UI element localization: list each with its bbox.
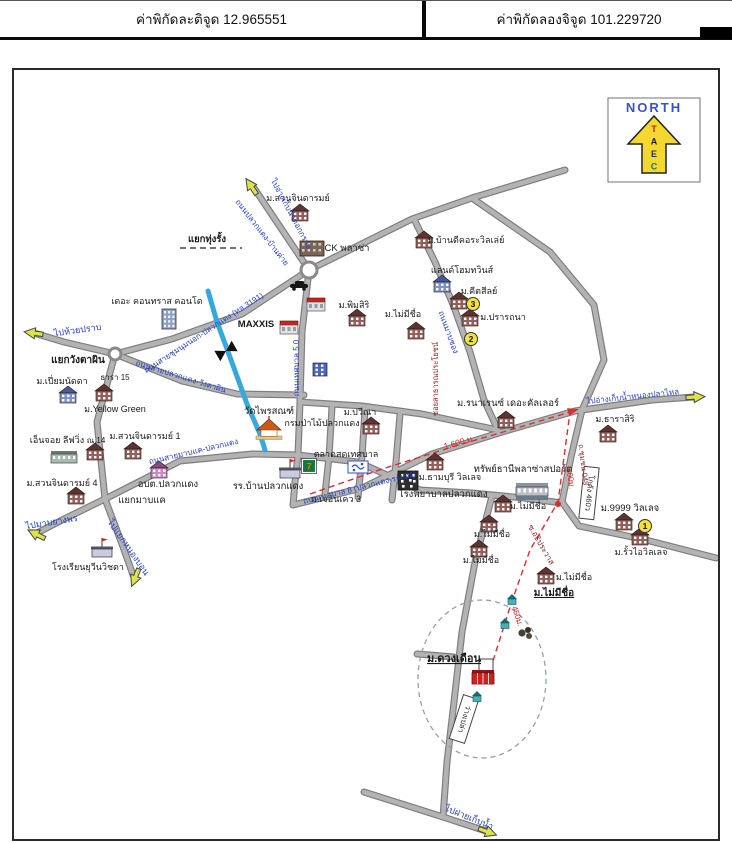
map-label: ม.ไม่มีชื่อ (474, 527, 510, 539)
icon-part (538, 574, 554, 584)
icon-building (461, 309, 479, 326)
icon-part (313, 363, 327, 376)
icon-part (356, 318, 358, 320)
icon-part (516, 487, 548, 496)
icon-part (137, 451, 139, 453)
icon-part (316, 365, 318, 367)
map-label: ซอยสาธารณประโยชน์ (431, 342, 440, 416)
map-label: ณ.14 (87, 436, 106, 445)
icon-part (307, 298, 325, 302)
map-label: ม.รนาเรนซ์ เดอะคัลเลอร์ (457, 397, 559, 409)
icon-part (151, 468, 167, 478)
icon-part (67, 395, 69, 397)
icon-part (600, 432, 616, 442)
map-label: ธารา 15 (100, 373, 130, 382)
icon-part (87, 450, 103, 460)
icon-govblue (313, 363, 327, 376)
icon-part (75, 500, 77, 502)
map-label: ม.Yellow Green (84, 404, 146, 414)
icon-part (415, 331, 417, 333)
road (34, 333, 115, 354)
number-badge-label: 1 (643, 521, 648, 531)
icon-part (320, 304, 323, 308)
icon-part (623, 522, 625, 524)
icon-part (316, 369, 318, 371)
icon-part (639, 537, 641, 539)
icon-part (441, 288, 443, 290)
icon-part (75, 496, 77, 498)
icon-part (602, 434, 604, 436)
icon-part (423, 244, 425, 246)
map-label: ม.ไม่มีชื่อ (556, 570, 592, 582)
icon-part (164, 316, 166, 318)
icon-part (351, 322, 353, 324)
icon-part (72, 395, 74, 397)
road-casing (472, 198, 604, 410)
icon-part (623, 526, 625, 528)
icon-part (288, 327, 291, 331)
map-label: ม.เปี่ยมนัดดา (36, 374, 87, 386)
icon-part (470, 540, 488, 547)
icon-part (451, 299, 467, 309)
map-label: โรงเรียนยุวีนวิชตา (52, 562, 124, 573)
icon-part (172, 325, 174, 327)
icon-building (407, 322, 425, 339)
icon-part (632, 535, 648, 545)
icon-part (483, 549, 485, 551)
map-label: ม.ดวงเดือน (427, 652, 482, 665)
icon-part (433, 275, 451, 282)
icon-part (356, 322, 358, 324)
icon-part (292, 287, 296, 291)
icon-part (441, 284, 443, 286)
icon-part (634, 541, 636, 543)
latitude-value: ค่าพิกัดละติจูด 12.965551 (136, 8, 287, 30)
icon-part (501, 623, 509, 629)
header-corner-mark (700, 27, 732, 39)
icon-part (516, 483, 548, 487)
icon-part (353, 469, 356, 472)
icon-part (365, 426, 367, 428)
icon-part (429, 466, 431, 468)
seven-eleven-icon: 7 (306, 461, 311, 472)
north-letter: C (651, 162, 658, 172)
number-badge: 3 (467, 298, 480, 311)
icon-part (540, 489, 543, 493)
icon-part (261, 430, 277, 437)
icon-part (321, 373, 323, 375)
icon-building (67, 487, 85, 504)
icon-part (163, 474, 165, 476)
icon-part (361, 318, 363, 320)
icon-part (463, 301, 465, 303)
map-frame: โกดัง 460วว่างเปล่า7ม.สวนจินดารมย์CK พลา… (12, 68, 720, 841)
map-label: กรมป่าไม้ปลวกแดง (284, 418, 359, 428)
icon-part (153, 474, 155, 476)
icon-part (102, 538, 108, 541)
north-letter: A (651, 137, 658, 147)
icon-part (602, 438, 604, 440)
icon-part (413, 480, 416, 483)
north-letter: T (651, 124, 657, 134)
icon-part (51, 451, 77, 454)
icon-part (408, 329, 424, 339)
icon-part (458, 305, 460, 307)
icon-part (124, 442, 142, 449)
icon-part (410, 331, 412, 333)
icon-part (508, 599, 516, 605)
icon-part (439, 462, 441, 464)
icon-part (534, 489, 537, 493)
number-badge: 1 (639, 520, 652, 533)
map-label: ทรัพย์ธานีพลาซ่าสปอร์ต (474, 463, 573, 475)
icon-part (473, 549, 475, 551)
icon-part (67, 487, 85, 494)
icon-part (497, 504, 499, 506)
icon-part (127, 451, 129, 453)
icon-temple (256, 416, 282, 440)
icon-part (618, 526, 620, 528)
icon-part (99, 452, 101, 454)
icon-part (618, 522, 620, 524)
icon-part (464, 322, 466, 324)
icon-part (282, 327, 285, 331)
icon-part (89, 456, 91, 458)
north-letter: E (651, 149, 657, 159)
north-box: NORTHTAEC (608, 98, 700, 182)
icon-part (474, 318, 476, 320)
icon-part (103, 393, 105, 395)
icon-part (472, 691, 482, 696)
icon-building (95, 384, 113, 401)
icon-part (418, 244, 420, 246)
icon-part (302, 249, 305, 252)
map-label: อบต.ปลวกแดง (138, 479, 198, 490)
icon-part (375, 426, 377, 428)
icon-house (472, 691, 482, 702)
icon-part (434, 282, 450, 292)
icon-part (507, 594, 517, 599)
icon-seven: 7 (302, 459, 317, 474)
icon-part (644, 537, 646, 539)
icon-building (615, 513, 633, 530)
icon-part (70, 496, 72, 498)
icon-part (498, 418, 514, 428)
icon-part (92, 549, 112, 557)
icon-part (321, 365, 323, 367)
icon-part (483, 524, 485, 526)
icon-part (615, 513, 633, 520)
icon-part (319, 243, 322, 246)
target-building-part (472, 670, 494, 673)
icon-part (94, 452, 96, 454)
icon-part (108, 393, 110, 395)
icon-part (59, 386, 77, 393)
icon-part (62, 395, 64, 397)
icon-part (53, 456, 55, 459)
icon-part (634, 537, 636, 539)
icon-part (427, 460, 443, 470)
icon-part (502, 508, 504, 510)
icon-part (464, 318, 466, 320)
icon-part (370, 426, 372, 428)
map-label: ม.รั้วไอวิลเลจ (615, 545, 668, 557)
number-badge: 2 (465, 333, 478, 346)
icon-part (474, 322, 476, 324)
map-label: ม.ปรารถนา (480, 312, 526, 322)
icon-part (446, 288, 448, 290)
icon-part (500, 420, 502, 422)
map-label: โรงพยาบาลปลวกแดง (398, 488, 487, 500)
icon-part (453, 301, 455, 303)
icon-part (429, 462, 431, 464)
icon-part (63, 456, 65, 459)
icon-part (462, 316, 478, 326)
icon-part (453, 305, 455, 307)
number-badge-label: 3 (471, 299, 476, 309)
icon-part (72, 399, 74, 401)
road-casing (309, 170, 565, 270)
icon-part (168, 325, 170, 327)
icon-part (96, 391, 112, 401)
icon-part (628, 526, 630, 528)
icon-part (415, 335, 417, 337)
icon-part (68, 494, 84, 504)
icon-part (497, 508, 499, 510)
icon-part (280, 470, 300, 478)
icon-shopred (280, 321, 298, 334)
icon-part (529, 489, 532, 493)
icon-part (316, 373, 318, 375)
map-label: ม.ไม่มีชื่อ (463, 553, 499, 565)
junction-circle (301, 262, 317, 278)
map-label: เอ็นจอย ลีฟวิ่ง (30, 433, 84, 445)
icon-part (410, 335, 412, 337)
icon-part (293, 327, 296, 331)
icon-part (418, 240, 420, 242)
icon-part (80, 500, 82, 502)
icon-part (488, 524, 490, 526)
icon-part (505, 420, 507, 422)
icon-part (612, 434, 614, 436)
road (472, 198, 604, 410)
icon-part (349, 316, 365, 326)
icon-part (446, 284, 448, 286)
icon-part (168, 311, 170, 313)
map-label: ถ.ชุมชน 048 (576, 444, 590, 486)
icon-part (158, 470, 160, 472)
icon-part (516, 496, 548, 500)
icon-house (507, 594, 517, 605)
icon-bluebld (433, 275, 451, 292)
icon-building (497, 411, 515, 428)
icon-part (510, 420, 512, 422)
icon-part (164, 325, 166, 327)
icon-part (518, 489, 521, 493)
map-label: 450ม. (510, 605, 525, 628)
latitude-cell: ค่าพิกัดละติจูด 12.965551 (0, 1, 423, 37)
icon-part (370, 430, 372, 432)
icon-part (500, 424, 502, 426)
icon-part (639, 541, 641, 543)
icon-part (168, 316, 170, 318)
map-label: ม.ไม่มีชื่อ (534, 585, 574, 599)
icon-part (98, 393, 100, 395)
icon-part (172, 311, 174, 313)
icon-part (458, 301, 460, 303)
icon-part (365, 430, 367, 432)
icon-sport (516, 483, 548, 500)
icon-part (478, 549, 480, 551)
icon-part (493, 524, 495, 526)
icon-part (439, 466, 441, 468)
map-label: เดอะ คอนทราส คอนโด (111, 296, 202, 306)
icon-longbld (51, 451, 77, 463)
map-label: ม.พิมสิริ (339, 300, 370, 310)
icon-part (402, 485, 405, 488)
icon-part (89, 452, 91, 454)
map-label: CK พลาซ่า (324, 243, 369, 254)
map-label: ตลาดสดเทศบาล (314, 449, 379, 459)
icon-part (290, 284, 308, 288)
icon-part (67, 399, 69, 401)
direction-arrow (686, 391, 706, 403)
icon-part (308, 249, 311, 252)
map-canvas: โกดัง 460วว่างเปล่า7ม.สวนจินดารมย์CK พลา… (14, 70, 718, 839)
icon-shopred (307, 298, 325, 311)
icon-part (361, 463, 364, 466)
icon-part (108, 397, 110, 399)
icon-part (495, 502, 511, 512)
icon-part (540, 580, 542, 582)
icon-part (540, 576, 542, 578)
map-label: แยกมาบแค (118, 495, 166, 506)
icon-part (172, 320, 174, 322)
icon-part (375, 430, 377, 432)
icon-house (500, 618, 510, 629)
icon-part (545, 576, 547, 578)
icon-part (321, 369, 323, 371)
icon-part (60, 393, 76, 403)
icon-part (612, 438, 614, 440)
icon-part (257, 419, 281, 430)
icon-part (137, 455, 139, 457)
map-label: แยกทุ่งรั้ง (188, 231, 226, 245)
icon-school (91, 538, 113, 557)
icon-part (153, 470, 155, 472)
icon-part (98, 397, 100, 399)
junction-circle (109, 348, 121, 360)
icon-part (599, 425, 617, 432)
icon-part (505, 424, 507, 426)
icon-part (420, 331, 422, 333)
icon-part (164, 320, 166, 322)
icon-bluebld (59, 386, 77, 403)
map-label: ม.สวนจินดารมย์ 4 (26, 477, 97, 488)
icon-part (304, 213, 306, 215)
icon-part (62, 399, 64, 401)
icon-grove (518, 627, 532, 639)
map-label: ม.คีตสีลย์ (461, 285, 498, 296)
icon-part (607, 434, 609, 436)
icon-part (436, 284, 438, 286)
icon-part (469, 322, 471, 324)
icon-part (537, 567, 555, 574)
map-label: ถนนสายปลวกแดง-วังตาผิน (134, 359, 227, 395)
icon-market (348, 461, 368, 473)
icon-part (525, 627, 531, 633)
icon-part (550, 576, 552, 578)
icon-part (299, 213, 301, 215)
icon-part (309, 304, 312, 308)
icon-part (469, 318, 471, 320)
map-label: ม.ธามบุรี วิลเลจ (419, 472, 481, 483)
icon-part (434, 462, 436, 464)
icon-part (80, 496, 82, 498)
icon-part (132, 451, 134, 453)
icon-part (518, 629, 525, 636)
map-label: รร.บ้านปลวกแดง (233, 481, 304, 492)
icon-part (158, 474, 160, 476)
map-label: แลนด์โฮมทวินส์ (431, 264, 494, 275)
icon-part (94, 456, 96, 458)
icon-part (304, 217, 306, 219)
icon-part (500, 618, 510, 623)
icon-part (361, 322, 363, 324)
icon-part (99, 456, 101, 458)
icon-part (351, 318, 353, 320)
map-label: แยกวังตาผิน (51, 354, 105, 366)
icon-part (348, 309, 366, 316)
icon-part (125, 449, 141, 459)
icon-part (510, 424, 512, 426)
icon-building (599, 425, 617, 442)
longitude-value: ค่าพิกัดลองจิจูด 101.229720 (496, 8, 661, 30)
map-label: ม.ปวีณา (344, 407, 377, 417)
icon-part (319, 249, 322, 252)
map-label: วัดไพรสณฑ์ (244, 405, 294, 417)
map-label: ถนนเทศบาล 5.0 (292, 339, 301, 396)
icon-part (420, 335, 422, 337)
icon-part (523, 489, 526, 493)
icon-part (172, 316, 174, 318)
icon-part (545, 580, 547, 582)
icon-part (407, 322, 425, 329)
icon-part (497, 411, 515, 418)
longitude-cell: ค่าพิกัดลองจิจูด 101.229720 (426, 1, 732, 37)
icon-part (526, 633, 532, 639)
icon-building (348, 309, 366, 326)
icon-part (58, 456, 60, 459)
icon-part (502, 504, 504, 506)
icon-part (164, 311, 166, 313)
icon-part (410, 485, 413, 488)
icon-part (70, 500, 72, 502)
icon-part (436, 288, 438, 290)
icon-part (434, 466, 436, 468)
icon-part (313, 249, 316, 252)
map-label: ม.บ้านดีคอระวิลเล่ย์ (428, 234, 505, 245)
icon-part (280, 321, 298, 325)
icon-building (124, 442, 142, 459)
icon-part (73, 456, 75, 459)
icon-part (473, 696, 481, 702)
map-label: ม.ไม่มีชื่อ (510, 499, 546, 511)
route-dot (555, 501, 561, 507)
north-label: NORTH (626, 100, 682, 115)
icon-part (163, 470, 165, 472)
map-label: ม.สวนจินดารมย์ 1 (109, 430, 180, 441)
